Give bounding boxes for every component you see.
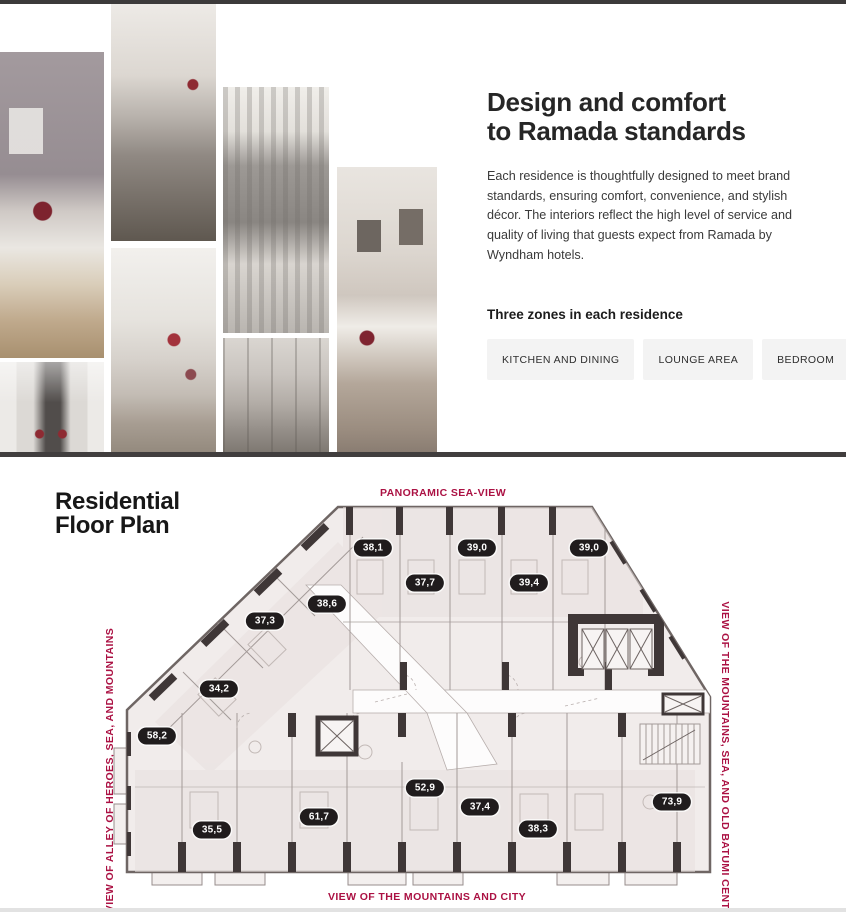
- elevator-icon: [568, 614, 664, 676]
- section-divider-bar: [0, 452, 846, 457]
- bottom-divider-bar: [0, 908, 846, 912]
- page: Design and comfort to Ramada standards E…: [0, 0, 846, 912]
- bathroom-photo: [223, 338, 329, 452]
- living-room-photo: [0, 52, 104, 358]
- service-elevator-icon: [318, 718, 356, 754]
- kitchen-photo: [0, 362, 104, 452]
- view-label-panoramic-sea: PANORAMIC SEA-VIEW: [380, 487, 506, 499]
- bedroom-photo: [337, 167, 437, 452]
- kitchen-dining-photo: [111, 4, 216, 241]
- zones-heading: Three zones in each residence: [487, 307, 803, 322]
- small-lift-icon: [663, 694, 703, 714]
- view-label-old-batumi-center: VIEW OF THE MOUNTAINS, SEA, AND OLD BATU…: [719, 601, 731, 912]
- zone-button-lounge-area[interactable]: LOUNGE AREA: [643, 339, 753, 380]
- zone-buttons-row: KITCHEN AND DINING LOUNGE AREA BEDROOM: [487, 339, 803, 380]
- floor-plan: 38,139,039,037,739,438,637,334,258,252,9…: [95, 502, 715, 892]
- zone-button-kitchen-and-dining[interactable]: KITCHEN AND DINING: [487, 339, 634, 380]
- intro-paragraph: Each residence is thoughtfully designed …: [487, 167, 803, 265]
- view-label-mountains-and-city: VIEW OF THE MOUNTAINS AND CITY: [328, 891, 526, 903]
- stairs-icon: [640, 724, 700, 764]
- intro-section: Design and comfort to Ramada standards E…: [487, 88, 803, 380]
- section-title: Design and comfort to Ramada standards: [487, 88, 803, 145]
- floor-plan-drawing: [95, 502, 715, 892]
- dining-area-photo: [223, 87, 329, 333]
- zone-button-bedroom[interactable]: BEDROOM: [762, 339, 846, 380]
- lounge-photo: [111, 248, 216, 452]
